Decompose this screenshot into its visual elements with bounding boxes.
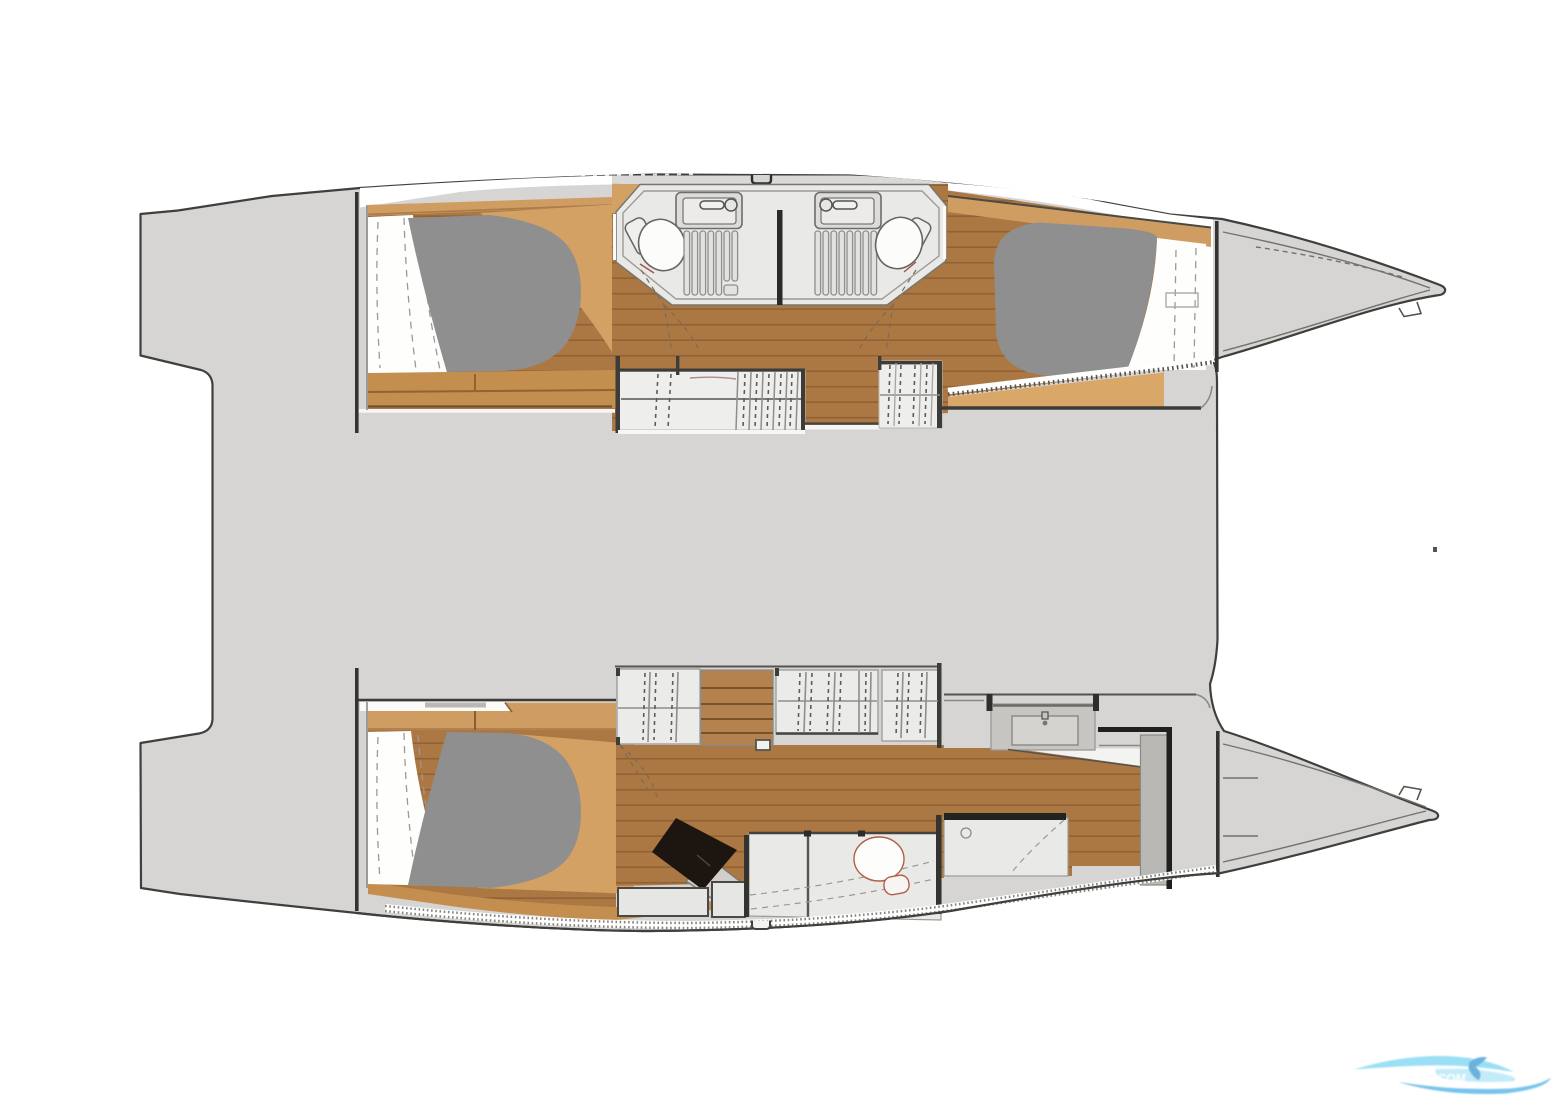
svg-text:.COM: .COM: [1434, 1072, 1466, 1086]
